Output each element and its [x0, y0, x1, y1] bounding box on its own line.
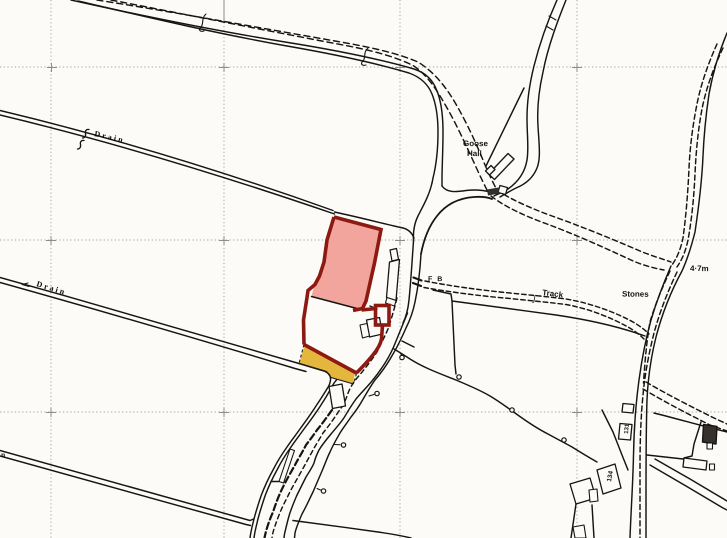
svg-text:4·7m: 4·7m	[690, 264, 709, 273]
svg-text:Stones: Stones	[622, 290, 649, 299]
svg-text:Goose: Goose	[463, 139, 489, 148]
svg-text:F B: F B	[428, 276, 444, 283]
svg-text:Hall: Hall	[467, 149, 482, 158]
svg-text:131: 131	[623, 423, 631, 434]
